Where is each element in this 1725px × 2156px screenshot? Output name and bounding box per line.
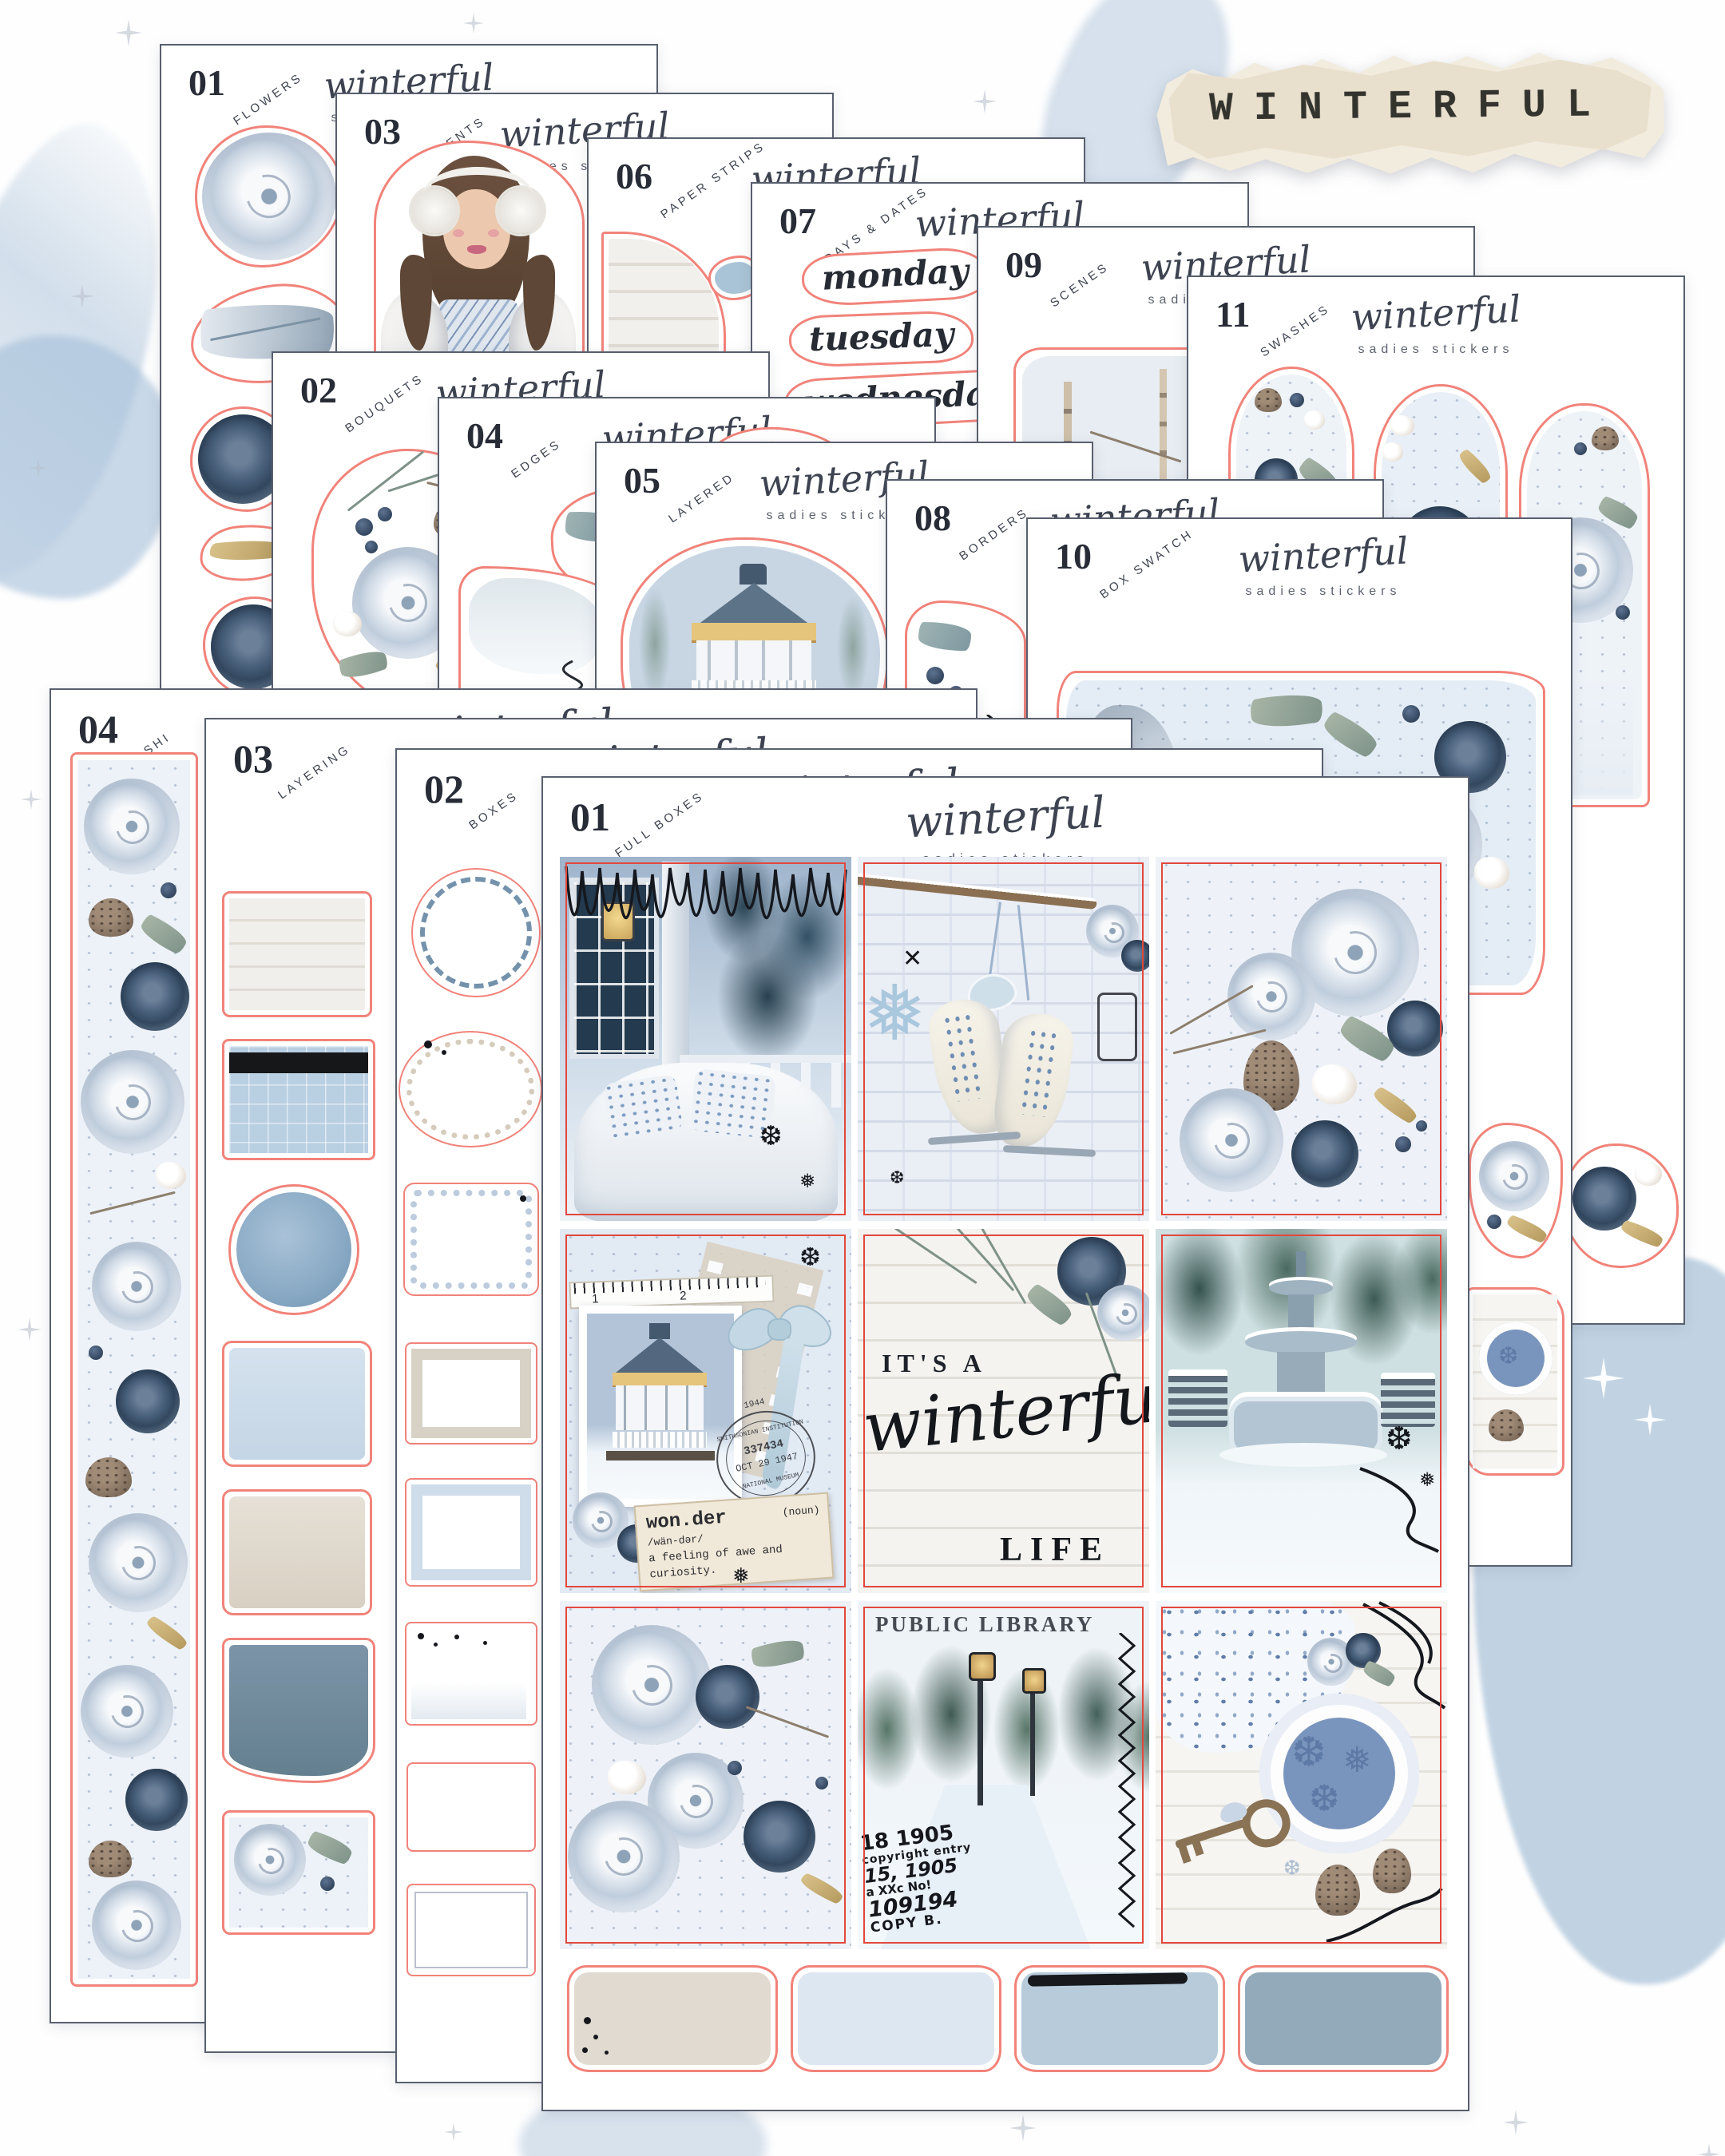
sheet-category: FULL BOXES (613, 789, 707, 861)
skate-blade (1003, 1145, 1096, 1157)
floral-piece-sticker (1469, 1123, 1563, 1258)
sheet-number: 04 (78, 706, 118, 752)
rose-cluster-sticker (1562, 1143, 1679, 1268)
sheet-full-boxes: 01 FULL BOXES winterful sadies stickers … (541, 776, 1469, 2111)
swatch-pale-blue (791, 1965, 1001, 2072)
day-sticker-monday: monday (800, 246, 989, 307)
sheet-number: 07 (779, 200, 816, 242)
plain-red-box (406, 1762, 536, 1852)
sheet-number: 03 (233, 735, 273, 782)
snowflake-icon: ❅ (732, 1564, 750, 1588)
sparkle-icon (1009, 2114, 1037, 2142)
brand-script: winterful (1307, 285, 1564, 342)
brand-subtitle: sadies stickers (1196, 585, 1451, 599)
sheet-category: EDGES (509, 437, 564, 482)
sparkle-icon (444, 2122, 463, 2142)
sheet-category: BOX SWATCH (1097, 527, 1196, 602)
sheet-number: 03 (364, 110, 401, 153)
winterful-sticker-collage: 01 FLOWERS winterful sadies stickers 03 … (0, 0, 1725, 2156)
sheet-number: 09 (1005, 244, 1042, 286)
collection-title: WINTERFUL (1152, 82, 1670, 133)
snowflake-cookie: ❆ (1309, 1777, 1340, 1820)
sheet-number: 05 (624, 459, 660, 501)
sparkle-icon (463, 13, 484, 34)
sheet-category: BOXES (466, 788, 521, 832)
grid-tape-swatch (222, 1039, 375, 1160)
day-sticker-tuesday: tuesday (788, 310, 974, 368)
lamp (969, 1652, 996, 1681)
stitch-zigzag-icon (1115, 1633, 1139, 1936)
sheet-number: 02 (424, 766, 464, 812)
ribbon-swirl-icon (1355, 1460, 1443, 1556)
pale-blue-swatch (222, 1341, 372, 1467)
sheet-number: 01 (188, 61, 225, 104)
snowflake-icon: ❆ (1386, 1421, 1413, 1457)
snowflake-icon: ❆ (799, 1242, 821, 1272)
snowflake-icon: ❅ (799, 1170, 815, 1192)
brand-script: winterful (837, 783, 1175, 851)
washi-strip-sticker (70, 752, 198, 1987)
dashed-circle-frame (411, 868, 541, 997)
box-winterful-life-quote: IT'S A winterful LIFE (858, 1229, 1149, 1593)
box-porch-armchair: ❆ ❅ (560, 857, 851, 1221)
sheet-category: LAYERING (276, 742, 353, 802)
ice-skate (990, 1009, 1077, 1151)
quote-line1: IT'S A (882, 1349, 987, 1378)
scribble-marks (1097, 993, 1137, 1061)
swatch-greige (567, 1965, 778, 2072)
cookie-plate-piece-sticker: ❆ (1465, 1287, 1564, 1476)
swatch-slate-blue (1238, 1965, 1449, 2072)
box-cookies-pouch: ❆ ❅ ❆ ❆ (1156, 1601, 1447, 1949)
sparkle-icon (115, 19, 142, 46)
sheet-number: 06 (616, 155, 652, 197)
bow-mark: ✕ (902, 945, 922, 973)
library-stamp-text: 18 1905 copyright entry 15, 1905 a XXc N… (859, 1817, 1017, 1949)
box-ice-skates: ❅ ✕ ❆ (858, 857, 1149, 1221)
sparkle-icon (1698, 2143, 1720, 2156)
sparkle-icon (21, 789, 42, 810)
ribbon-swirl-icon (1323, 1885, 1443, 1949)
slate-torn-swatch (222, 1638, 375, 1783)
floral-swatch (222, 1810, 375, 1935)
brand-script: winterful (1195, 527, 1452, 584)
box-winter-florals (1156, 857, 1447, 1221)
ribbon-swirl-icon (1355, 1601, 1447, 1713)
snowflake-icon: ❆ (890, 1168, 904, 1188)
rose-sticker (195, 125, 343, 268)
greige-frame (405, 1342, 537, 1445)
title-banner: WINTERFUL (1151, 36, 1670, 184)
park-bench (1381, 1373, 1435, 1427)
lamppost (978, 1670, 983, 1805)
icicle-scribble-icon (563, 860, 849, 937)
blue-frame (405, 1478, 537, 1587)
watercolor-wash (0, 335, 176, 599)
snowflake-icon: ❆ (759, 1120, 783, 1152)
ruler-mark: 1 (592, 1292, 599, 1306)
thin-line-box (406, 1884, 536, 1976)
box-public-library: PUBLIC LIBRARY 18 1905 copyright entry 1… (858, 1601, 1149, 1949)
doily-oval-frame (399, 1031, 542, 1147)
dotted-snow-box (405, 1622, 537, 1726)
sheet-number: 10 (1055, 535, 1092, 577)
sheet-number: 04 (466, 414, 503, 457)
park-bench (1168, 1369, 1227, 1427)
snowflake-icon: ❅ (862, 969, 926, 1058)
snowflake-icon: ❆ (1283, 1857, 1301, 1881)
branch (858, 873, 1097, 910)
sparkle-icon (18, 1318, 42, 1342)
box-snow-fountain: ❆ ❅ (1156, 1229, 1447, 1593)
blue-bow (726, 1291, 838, 1387)
sparkle-icon (1503, 2110, 1529, 2135)
lamp (1022, 1668, 1046, 1694)
scallop-rect-frame (403, 1183, 539, 1296)
box-roses-brick (560, 1601, 851, 1949)
box-gazebo-collage: 1 2 1944 SMITHSONIAN INSTI (560, 1229, 851, 1593)
sheet-number: 02 (300, 369, 337, 411)
sheet-number: 01 (570, 794, 610, 840)
snowflake-cookie: ❅ (1342, 1740, 1372, 1781)
fountain-spire (1296, 1251, 1306, 1283)
beige-swatch (222, 1489, 372, 1615)
snowflake-cookie: ❆ (1291, 1729, 1326, 1777)
brand-subtitle: sadies stickers (1308, 343, 1564, 357)
swatch-powder-blue (1014, 1965, 1225, 2072)
wood-swatch (222, 891, 372, 1017)
ruler-mark: 2 (680, 1289, 687, 1302)
circle-swatch (228, 1184, 359, 1315)
sheet-number: 11 (1215, 293, 1250, 335)
quote-line3: LIFE (1000, 1531, 1110, 1569)
sparkle-icon (973, 89, 997, 113)
library-title: PUBLIC LIBRARY (875, 1612, 1094, 1637)
lamppost (1030, 1684, 1035, 1796)
sheet-number: 08 (914, 497, 951, 539)
